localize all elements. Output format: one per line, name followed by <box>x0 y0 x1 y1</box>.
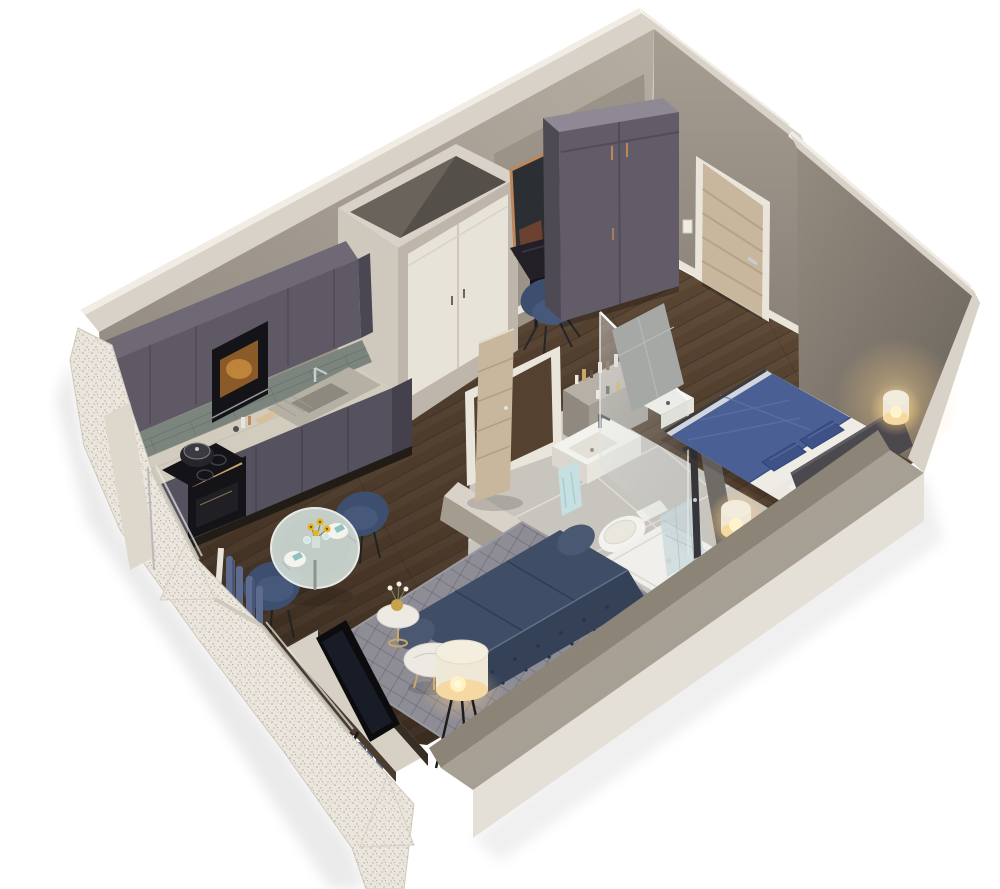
bathroom-door-handle <box>504 406 508 410</box>
light-switch <box>683 220 692 233</box>
base-right-end <box>392 378 412 455</box>
wardrobe <box>543 98 679 328</box>
bedside-lamp-right <box>870 384 922 436</box>
hand-towel <box>558 460 582 516</box>
wardrobe-side <box>543 118 561 320</box>
screenshot-root: Isometric 3D cutaway floor plan render o… <box>0 0 1000 889</box>
floor-plan-render: Isometric 3D cutaway floor plan render o… <box>0 0 1000 889</box>
dining-table <box>271 508 359 590</box>
